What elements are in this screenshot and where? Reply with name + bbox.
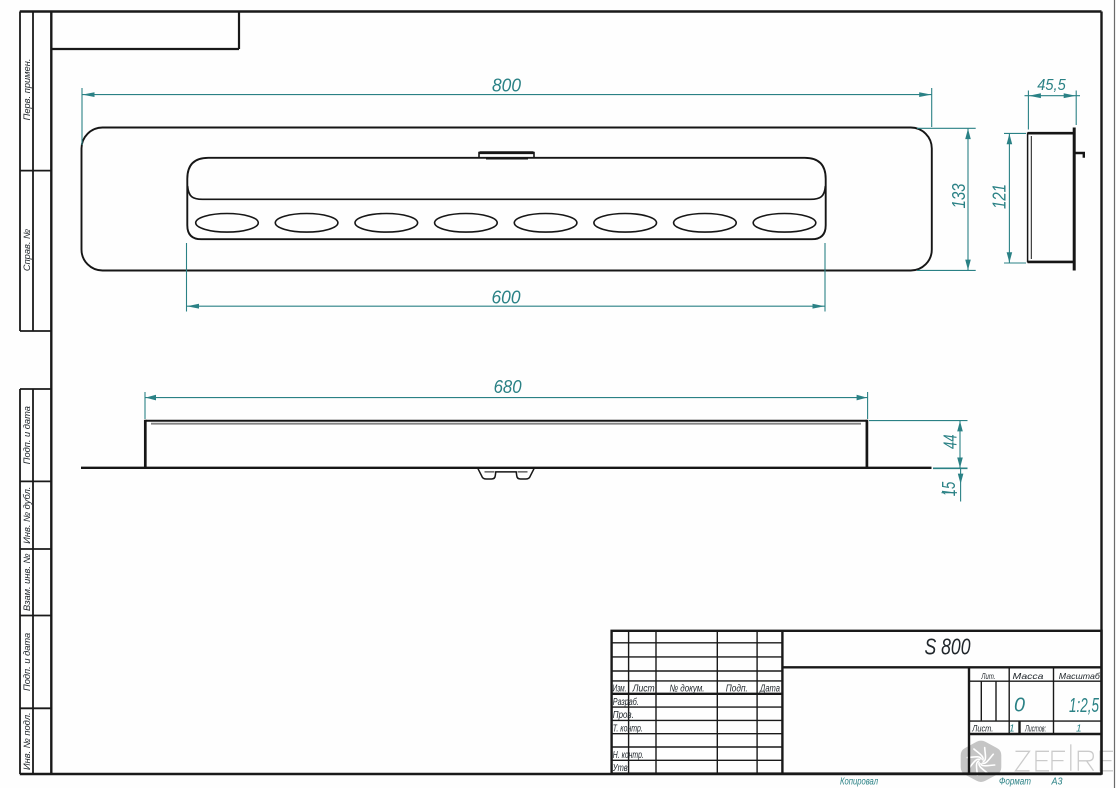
svg-text:Копировал: Копировал	[840, 776, 878, 787]
svg-text:Утв.: Утв.	[612, 763, 630, 774]
svg-text:45,5: 45,5	[1037, 77, 1066, 94]
svg-text:1: 1	[1009, 723, 1015, 734]
svg-text:Лист: Лист	[632, 683, 655, 694]
svg-text:Инв. № дубл.: Инв. № дубл.	[22, 487, 32, 544]
svg-text:Изм.: Изм.	[613, 683, 627, 694]
svg-text:Н. контр.: Н. контр.	[613, 750, 644, 761]
svg-text:№ докум.: № докум.	[670, 683, 705, 694]
svg-text:Формат: Формат	[999, 776, 1031, 787]
svg-text:Лит.: Лит.	[981, 671, 996, 681]
svg-text:Пров.: Пров.	[613, 710, 634, 721]
svg-text:800: 800	[492, 75, 522, 96]
svg-text:44: 44	[939, 435, 960, 450]
svg-text:600: 600	[492, 286, 522, 307]
svg-text:15: 15	[938, 481, 959, 496]
svg-text:Перв. примен.: Перв. примен.	[22, 59, 32, 121]
svg-text:Листов:: Листов:	[1024, 723, 1046, 733]
svg-text:Лист.: Лист.	[971, 723, 993, 733]
svg-text:Масса: Масса	[1013, 671, 1044, 681]
svg-text:Подп. и дата: Подп. и дата	[22, 406, 32, 464]
svg-text:0: 0	[1014, 695, 1025, 717]
svg-text:А3: А3	[1051, 776, 1063, 787]
svg-text:1:2,5: 1:2,5	[1069, 695, 1100, 717]
svg-text:Подп. и дата: Подп. и дата	[22, 633, 32, 691]
svg-text:S 800: S 800	[925, 634, 971, 660]
svg-text:Разраб.: Разраб.	[613, 696, 639, 708]
svg-text:133: 133	[948, 183, 969, 209]
svg-text:Взам. инв. №: Взам. инв. №	[22, 553, 32, 611]
svg-text:680: 680	[494, 376, 523, 397]
svg-text:1: 1	[1076, 723, 1082, 734]
svg-text:Т. контр.: Т. контр.	[613, 723, 643, 734]
svg-text:121: 121	[988, 184, 1009, 209]
svg-text:Масштаб: Масштаб	[1059, 671, 1101, 681]
svg-text:Дата: Дата	[759, 683, 780, 694]
svg-text:Подп.: Подп.	[726, 683, 748, 694]
svg-text:Инв. № подл.: Инв. № подл.	[22, 712, 32, 770]
svg-text:Справ. №: Справ. №	[22, 229, 32, 271]
